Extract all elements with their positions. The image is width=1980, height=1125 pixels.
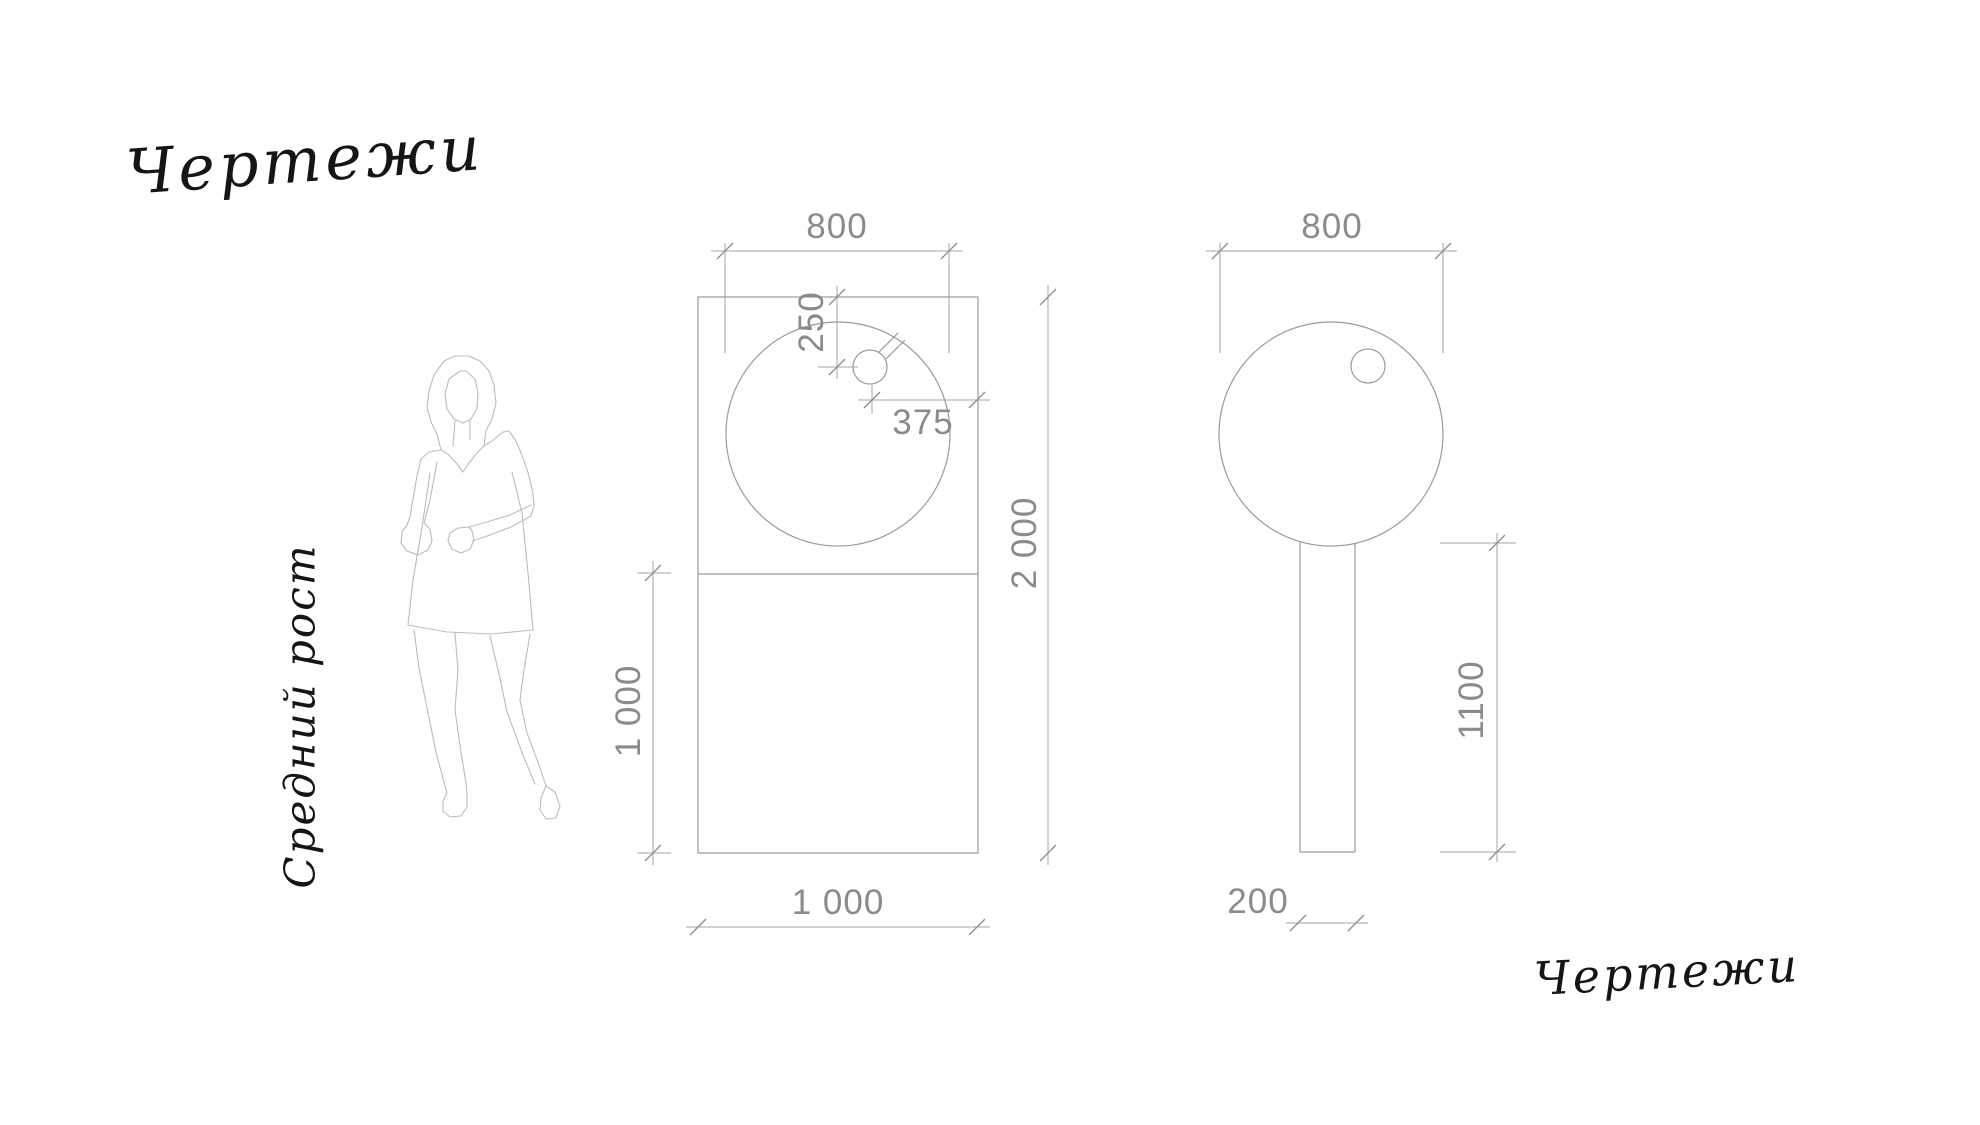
figure-left-arm — [401, 450, 441, 555]
side-view-drawing — [1219, 322, 1443, 852]
figure-left-foot — [443, 793, 467, 817]
figure-face — [445, 371, 478, 423]
dim-label-side-post-width: 200 — [1227, 882, 1288, 922]
figure-hair-right — [455, 356, 496, 446]
drawing-sheet: Чертежи Средний рост Чертежи 800 250 375… — [0, 0, 1980, 1125]
dim-label-front-circle-width: 800 — [806, 207, 867, 247]
side-sign-circle — [1219, 322, 1443, 546]
figure-hair-left — [427, 356, 455, 450]
figure-right-arm — [484, 431, 534, 515]
dim-label-front-lower-height: 1 000 — [609, 665, 649, 758]
figure-neckline — [441, 446, 484, 472]
dimension-tick-marks — [645, 243, 1505, 935]
figure-right-leg-inner — [490, 636, 535, 784]
front-view-dimension-lines — [637, 243, 1048, 927]
dim-label-front-bottom-width: 1 000 — [792, 883, 885, 923]
figure-right-forearm-upper — [469, 505, 531, 527]
figure-right-leg-outer — [520, 634, 546, 786]
figure-right-hand — [448, 527, 474, 553]
figure-dress-left — [408, 473, 430, 625]
handwritten-label-average-height: Средний рост — [276, 543, 325, 888]
figure-left-leg-inner — [455, 633, 467, 794]
front-hanging-hole — [853, 350, 887, 384]
side-view-dimension-lines — [1206, 243, 1516, 923]
dim-label-front-total-height: 2 000 — [1005, 497, 1045, 590]
figure-left-arm-inner — [424, 462, 437, 523]
front-view-drawing — [698, 297, 978, 853]
dim-label-front-hole-from-right: 375 — [892, 403, 953, 443]
side-hanging-hole — [1351, 349, 1385, 383]
dim-label-side-circle-width: 800 — [1301, 207, 1362, 247]
dim-label-side-post-height: 1100 — [1452, 660, 1492, 739]
figure-neck-left — [453, 421, 455, 446]
human-figure — [401, 356, 560, 819]
front-dim-lines — [637, 243, 1048, 927]
side-dim-lines — [1206, 243, 1516, 923]
figure-dress-hem — [408, 625, 533, 634]
figure-dress-right — [512, 472, 533, 630]
figure-left-leg-outer — [414, 630, 447, 793]
figure-right-foot — [540, 786, 560, 819]
dim-label-front-hole-from-top: 250 — [792, 291, 832, 352]
